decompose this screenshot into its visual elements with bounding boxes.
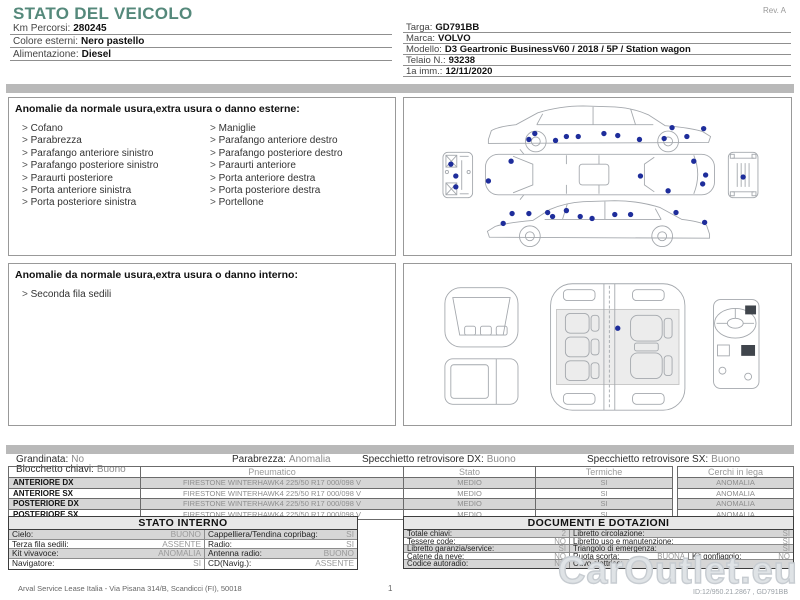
cerchi-cell: ANOMALIA	[678, 478, 794, 489]
info-value: Diesel	[82, 49, 111, 60]
status-value: Anomalia	[289, 454, 331, 465]
anomaly-item: Porta posteriore sinistra	[17, 197, 205, 209]
info-label: Modello:	[406, 44, 442, 55]
field-value: SI	[346, 540, 357, 549]
dashboard-view	[714, 300, 759, 389]
info-label: Targa:	[406, 22, 432, 33]
anomaly-label: Parafango anteriore destro	[219, 135, 338, 146]
field-label: Catene da neve:	[404, 553, 554, 560]
status-label: Parabrezza:	[232, 454, 286, 465]
status-label: Specchietto retrovisore DX:	[362, 454, 484, 465]
stato-interno-row: Kit vivavoce:ANOMALIA Antenna radio:BUON…	[9, 549, 357, 559]
field-label: CD(Navig.):	[205, 559, 315, 569]
exterior-car-diagram	[404, 98, 791, 255]
info-value: 93238	[449, 55, 475, 66]
field-value: BUONO	[324, 549, 357, 558]
field-label: Kit vivavoce:	[9, 549, 158, 558]
anomaly-item: Parafango anteriore sinistro	[17, 148, 205, 160]
tire-name-cell: FIRESTONE WINTERHAWK4 225/50 R17 000/098…	[141, 499, 404, 510]
exterior-anomalies-col2: Maniglie Parafango anteriore destro Para…	[205, 123, 393, 210]
cerchi-cell: ANOMALIA	[678, 499, 794, 510]
status-specchietto-dx: Specchietto retrovisore DX:Buono	[362, 454, 516, 465]
field-label: Navigatore:	[9, 559, 193, 569]
info-label: Alimentazione:	[13, 49, 79, 60]
anomaly-item: Seconda fila sedili	[17, 289, 205, 301]
field-label: Totale chiavi:	[404, 530, 562, 537]
anomaly-label: Porta anteriore sinistra	[31, 185, 132, 196]
field-label: Cappelliera/Tendina copribag:	[205, 530, 346, 539]
field-value: SI	[193, 559, 204, 569]
tire-stato-cell: MEDIO	[404, 499, 536, 510]
vehicle-info-right: Targa:GD791BB Marca:VOLVO Modello:D3 Gea…	[403, 22, 791, 77]
info-value: 280245	[73, 23, 106, 34]
caroutlet-watermark: CarOutlet.eu	[558, 550, 798, 593]
anomaly-label: Porta anteriore destra	[219, 173, 316, 184]
anomaly-item: Porta anteriore destra	[205, 173, 393, 185]
anomaly-item: Maniglie	[205, 123, 393, 135]
anomaly-label: Porta posteriore sinistra	[31, 197, 137, 208]
status-specchietto-sx: Specchietto retrovisore SX:Buono	[587, 454, 740, 465]
info-row-targa: Targa:GD791BB	[403, 22, 791, 33]
footer-address: Arval Service Lease Italia - Via Pisana …	[18, 584, 242, 593]
info-value: VOLVO	[438, 33, 471, 44]
info-label: Km Percorsi:	[13, 23, 70, 34]
info-row-alimentazione: Alimentazione:Diesel	[10, 48, 392, 61]
anomaly-label: Parafango posteriore sinistro	[31, 160, 159, 171]
interior-anomalies-title: Anomalie da normale usura,extra usura o …	[9, 264, 395, 281]
stato-interno-table: STATO INTERNO Cielo:BUONO Cappelliera/Te…	[8, 516, 358, 570]
revision-label: Rev. A	[763, 6, 786, 15]
anomaly-label: Portellone	[219, 197, 264, 208]
field-label: Radio:	[205, 540, 346, 549]
info-value: Nero pastello	[81, 36, 144, 47]
cerchi-in-lega-table: Cerchi in lega ANOMALIA ANOMALIA ANOMALI…	[677, 466, 794, 520]
field-label: Libretto garanzia/service:	[404, 545, 559, 552]
exterior-anomalies-col1: Cofano Parabrezza Parafango anteriore si…	[17, 123, 205, 210]
cerchi-header-row: Cerchi in lega	[678, 467, 794, 478]
tire-pneumatico-header: Pneumatico	[141, 467, 404, 478]
tire-row: ANTERIORE DXFIRESTONE WINTERHAWK4 225/50…	[9, 478, 673, 489]
documenti-row: Tessere code:NO Libretto uso e manutenzi…	[404, 538, 793, 546]
field-value: BUONO	[171, 530, 204, 539]
exterior-anomalies-title: Anomalie da normale usura,extra usura o …	[9, 98, 395, 115]
anomaly-label: Parafango posteriore destro	[219, 148, 343, 159]
cerchi-header: Cerchi in lega	[678, 467, 794, 478]
info-label: Telaio N.:	[406, 55, 446, 66]
field-label: Antenna radio:	[205, 549, 324, 558]
cabin-plan-view	[551, 284, 685, 410]
trunk-view	[445, 288, 518, 347]
anomaly-item: Parafango anteriore destro	[205, 135, 393, 147]
vehicle-report-page: STATO DEL VEICOLO Rev. A Km Percorsi:280…	[0, 0, 800, 600]
field-value: SI	[346, 530, 357, 539]
status-value: Buono	[711, 454, 740, 465]
anomaly-item: Paraurti posteriore	[17, 173, 205, 185]
field-label: Tessere code:	[404, 538, 554, 545]
tire-stato-cell: MEDIO	[404, 488, 536, 499]
tire-termiche-cell: SI	[536, 478, 673, 489]
anomaly-label: Paraurti posteriore	[31, 173, 113, 184]
info-label: 1a imm.:	[406, 66, 442, 77]
status-parabrezza: Parabrezza:Anomalia	[232, 454, 331, 465]
info-row-colore: Colore esterni:Nero pastello	[10, 35, 392, 48]
car-side-view-bottom	[487, 201, 709, 247]
field-value: NO	[554, 538, 569, 545]
anomaly-item: Cofano	[17, 123, 205, 135]
cerchi-row: ANOMALIA	[678, 499, 794, 510]
cerchi-row: ANOMALIA	[678, 488, 794, 499]
anomaly-item: Parafango posteriore sinistro	[17, 160, 205, 172]
tire-position-cell: ANTERIORE DX	[9, 478, 141, 489]
footer-page-number: 1	[388, 584, 392, 593]
field-label: Libretto uso e manutenzione:	[570, 538, 783, 545]
info-row-telaio: Telaio N.:93238	[403, 55, 791, 66]
tires-header-row: Pneumatico Stato Termiche	[9, 467, 673, 478]
info-value: D3 Geartronic BusinessV60 / 2018 / 5P / …	[445, 44, 691, 55]
status-value: Buono	[487, 454, 516, 465]
tire-position-cell: POSTERIORE DX	[9, 499, 141, 510]
exterior-anomalies-panel: Anomalie da normale usura,extra usura o …	[8, 97, 396, 256]
anomaly-label: Maniglie	[219, 123, 256, 134]
anomaly-label: Porta posteriore destra	[219, 185, 321, 196]
info-row-modello: Modello:D3 Geartronic BusinessV60 / 2018…	[403, 44, 791, 55]
field-value: ASSENTE	[162, 540, 204, 549]
interior-damage-diagram	[403, 263, 792, 426]
cerchi-row: ANOMALIA	[678, 478, 794, 489]
info-label: Marca:	[406, 33, 435, 44]
documenti-header: DOCUMENTI E DOTAZIONI	[404, 517, 793, 530]
anomaly-label: Parafango anteriore sinistro	[31, 148, 154, 159]
exterior-damage-diagram	[403, 97, 792, 256]
anomaly-item: Parafango posteriore destro	[205, 148, 393, 160]
info-row-immatricolazione: 1a imm.:12/11/2020	[403, 66, 791, 77]
tire-name-cell: FIRESTONE WINTERHAWK4 225/50 R17 000/098…	[141, 478, 404, 489]
anomaly-item: Portellone	[205, 197, 393, 209]
cerchi-cell: ANOMALIA	[678, 488, 794, 499]
tire-termiche-cell: SI	[536, 488, 673, 499]
interior-anomalies-list: Seconda fila sedili	[17, 289, 205, 301]
anomaly-item: Paraurti anteriore	[205, 160, 393, 172]
tire-termiche-cell: SI	[536, 499, 673, 510]
interior-car-diagram	[404, 264, 791, 425]
car-side-view-top	[488, 106, 710, 152]
interior-damage-dots-layer	[615, 326, 620, 331]
anomaly-item: Porta anteriore sinistra	[17, 185, 205, 197]
tire-row: ANTERIORE SXFIRESTONE WINTERHAWK4 225/50…	[9, 488, 673, 499]
field-value: SI	[783, 538, 793, 545]
tire-row: POSTERIORE DXFIRESTONE WINTERHAWK4 225/5…	[9, 499, 673, 510]
tire-stato-cell: MEDIO	[404, 478, 536, 489]
anomaly-item: Parabrezza	[17, 135, 205, 147]
status-label: Specchietto retrovisore SX:	[587, 454, 708, 465]
tires-table: Pneumatico Stato Termiche ANTERIORE DXFI…	[8, 466, 673, 520]
tire-stato-header: Stato	[404, 467, 536, 478]
page-title: STATO DEL VEICOLO	[13, 4, 193, 24]
field-value: ASSENTE	[315, 559, 357, 569]
interior-anomalies-panel: Anomalie da normale usura,extra usura o …	[8, 263, 396, 426]
tire-termiche-header: Termiche	[536, 467, 673, 478]
exterior-damage-dots-layer	[448, 125, 746, 226]
field-label: Codice autoradio:	[404, 560, 554, 568]
tire-name-cell: FIRESTONE WINTERHAWK4 225/50 R17 000/098…	[141, 488, 404, 499]
divider-bar-top	[6, 84, 794, 93]
info-value: 12/11/2020	[445, 66, 492, 77]
tire-position-cell: ANTERIORE SX	[9, 488, 141, 499]
cargo-view	[445, 359, 518, 404]
info-row-marca: Marca:VOLVO	[403, 33, 791, 44]
info-row-km: Km Percorsi:280245	[10, 22, 392, 35]
documenti-row: Totale chiavi:2 Libretto circolazione:SI	[404, 530, 793, 538]
stato-interno-row: Navigatore:SI CD(Navig.):ASSENTE	[9, 559, 357, 569]
vehicle-info-left: Km Percorsi:280245 Colore esterni:Nero p…	[10, 22, 392, 61]
anomaly-label: Paraurti anteriore	[219, 160, 296, 171]
field-value: SI	[783, 530, 793, 537]
field-label: Libretto circolazione:	[570, 530, 783, 537]
footer-id-text: ID:12/950.21.2867 , GD791BB	[693, 589, 788, 596]
field-label: Cielo:	[9, 530, 171, 539]
field-value: ANOMALIA	[158, 549, 204, 558]
info-value: GD791BB	[435, 22, 479, 33]
field-value: 2	[562, 530, 569, 537]
anomaly-label: Seconda fila sedili	[31, 289, 112, 300]
anomaly-item: Porta posteriore destra	[205, 185, 393, 197]
divider-bar-bottom	[6, 445, 794, 454]
tire-position-header	[9, 467, 141, 478]
field-label: Terza fila sedili:	[9, 540, 162, 549]
anomaly-label: Parabrezza	[31, 135, 82, 146]
anomaly-label: Cofano	[31, 123, 63, 134]
info-label: Colore esterni:	[13, 36, 78, 47]
car-plan-view	[485, 149, 714, 199]
